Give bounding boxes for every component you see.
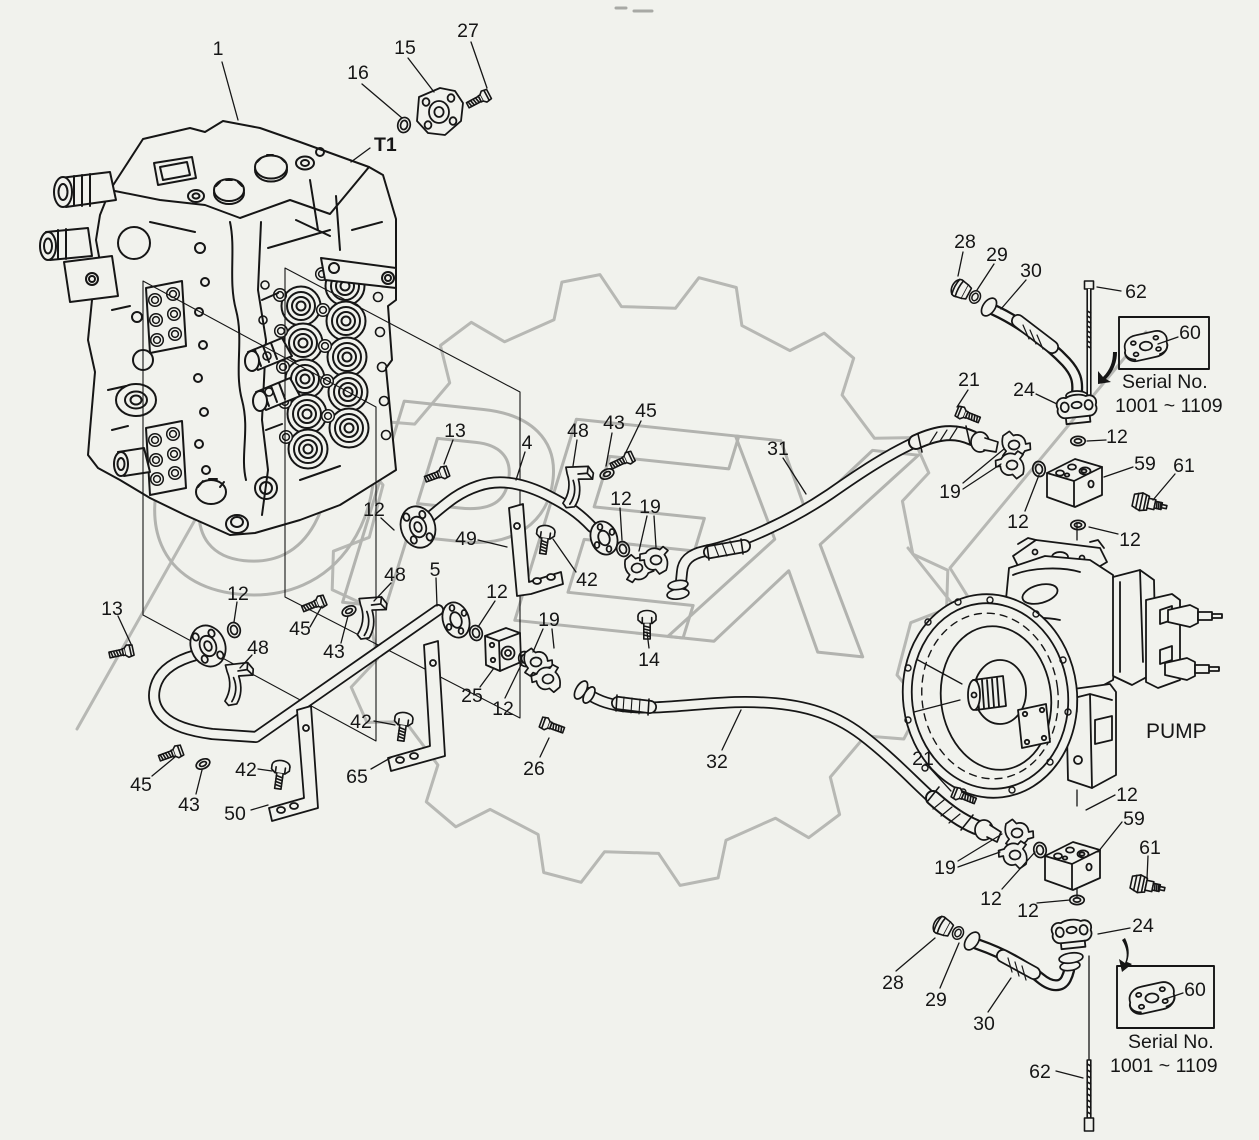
svg-text:43: 43 <box>178 794 200 816</box>
svg-text:48: 48 <box>567 420 589 442</box>
svg-text:42: 42 <box>350 711 372 733</box>
svg-text:61: 61 <box>1173 455 1195 477</box>
svg-text:65: 65 <box>346 766 368 788</box>
svg-text:12: 12 <box>227 583 249 605</box>
svg-text:13: 13 <box>101 598 123 620</box>
svg-text:60: 60 <box>1184 979 1206 1001</box>
svg-text:59: 59 <box>1134 453 1156 475</box>
svg-text:21: 21 <box>958 369 980 391</box>
svg-text:Serial No.: Serial No. <box>1128 1031 1214 1053</box>
svg-text:1: 1 <box>213 38 224 60</box>
svg-text:45: 45 <box>289 618 311 640</box>
svg-text:12: 12 <box>1119 529 1141 551</box>
svg-text:45: 45 <box>130 774 152 796</box>
svg-text:12: 12 <box>1017 900 1039 922</box>
svg-text:24: 24 <box>1013 379 1035 401</box>
svg-text:12: 12 <box>492 698 514 720</box>
svg-text:PUMP: PUMP <box>1146 720 1207 743</box>
svg-text:19: 19 <box>639 496 661 518</box>
svg-text:14: 14 <box>638 649 660 671</box>
svg-text:42: 42 <box>576 569 598 591</box>
svg-text:28: 28 <box>954 231 976 253</box>
svg-text:12: 12 <box>1106 426 1128 448</box>
svg-text:29: 29 <box>925 989 947 1011</box>
svg-text:30: 30 <box>973 1013 995 1035</box>
svg-text:27: 27 <box>457 20 479 42</box>
svg-text:T1: T1 <box>374 134 397 156</box>
svg-text:50: 50 <box>224 803 246 825</box>
svg-text:62: 62 <box>1029 1061 1051 1083</box>
svg-text:12: 12 <box>1116 784 1138 806</box>
svg-text:19: 19 <box>538 609 560 631</box>
svg-text:15: 15 <box>394 37 416 59</box>
svg-text:Serial No.: Serial No. <box>1122 371 1208 393</box>
svg-text:1001 ~ 1109: 1001 ~ 1109 <box>1110 1055 1218 1077</box>
svg-text:12: 12 <box>1007 511 1029 533</box>
svg-text:4: 4 <box>522 432 533 454</box>
svg-text:19: 19 <box>939 481 961 503</box>
svg-text:12: 12 <box>486 581 508 603</box>
svg-text:30: 30 <box>1020 260 1042 282</box>
svg-text:43: 43 <box>323 641 345 663</box>
svg-text:19: 19 <box>934 857 956 879</box>
svg-text:1001 ~ 1109: 1001 ~ 1109 <box>1115 395 1223 417</box>
svg-text:13: 13 <box>444 420 466 442</box>
svg-text:5: 5 <box>430 559 441 581</box>
svg-text:21: 21 <box>912 748 934 770</box>
svg-text:12: 12 <box>610 488 632 510</box>
svg-text:42: 42 <box>235 759 257 781</box>
svg-text:48: 48 <box>384 564 406 586</box>
svg-text:49: 49 <box>455 528 477 550</box>
svg-text:26: 26 <box>523 758 545 780</box>
svg-text:29: 29 <box>986 244 1008 266</box>
svg-text:28: 28 <box>882 972 904 994</box>
svg-text:12: 12 <box>980 888 1002 910</box>
svg-text:61: 61 <box>1139 837 1161 859</box>
svg-text:25: 25 <box>461 685 483 707</box>
svg-text:62: 62 <box>1125 281 1147 303</box>
svg-text:45: 45 <box>635 400 657 422</box>
svg-text:24: 24 <box>1132 915 1154 937</box>
svg-text:32: 32 <box>706 751 728 773</box>
svg-text:60: 60 <box>1179 322 1201 344</box>
svg-text:31: 31 <box>767 438 789 460</box>
svg-text:48: 48 <box>247 637 269 659</box>
svg-text:12: 12 <box>363 499 385 521</box>
svg-text:43: 43 <box>603 412 625 434</box>
svg-text:16: 16 <box>347 62 369 84</box>
svg-text:59: 59 <box>1123 808 1145 830</box>
